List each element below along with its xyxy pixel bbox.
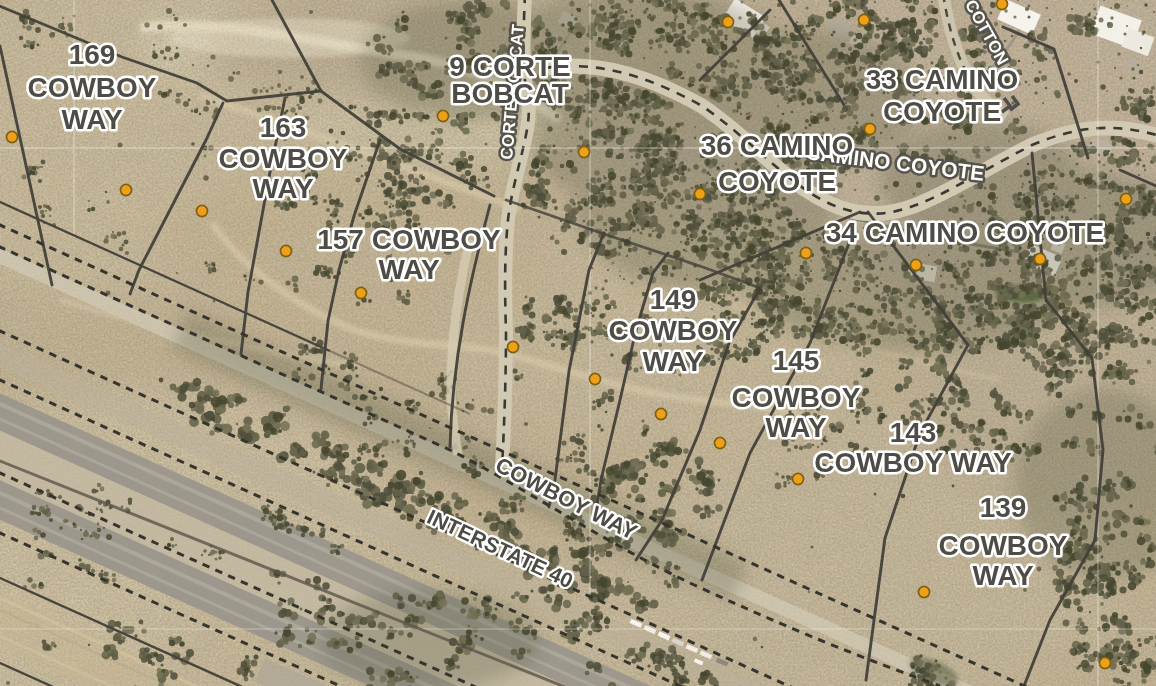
svg-text:COWBOY: COWBOY — [608, 315, 737, 346]
svg-text:34 CAMINO COYOTE: 34 CAMINO COYOTE — [826, 217, 1104, 248]
svg-text:149: 149 — [650, 284, 697, 315]
svg-text:COWBOY: COWBOY — [731, 382, 860, 413]
svg-text:COYOTE: COYOTE — [883, 96, 1001, 127]
svg-text:WAY: WAY — [252, 173, 314, 204]
svg-text:WAY: WAY — [61, 104, 123, 135]
svg-text:WAY: WAY — [765, 412, 827, 443]
svg-text:163: 163 — [260, 112, 307, 143]
svg-text:COWBOY: COWBOY — [218, 143, 347, 174]
svg-text:COWBOY: COWBOY — [938, 530, 1067, 561]
svg-text:WAY: WAY — [972, 560, 1034, 591]
svg-text:WAY: WAY — [642, 346, 704, 377]
svg-text:COWBOY WAY: COWBOY WAY — [814, 447, 1012, 478]
svg-text:COYOTE: COYOTE — [718, 166, 836, 197]
svg-text:COWBOY: COWBOY — [27, 72, 156, 103]
svg-text:169: 169 — [69, 39, 116, 70]
svg-text:145: 145 — [773, 345, 820, 376]
svg-text:WAY: WAY — [378, 254, 440, 285]
svg-text:36 CAMINO: 36 CAMINO — [701, 130, 853, 161]
svg-text:157 COWBOY: 157 COWBOY — [317, 224, 501, 255]
svg-text:BOBCAT: BOBCAT — [451, 78, 569, 109]
svg-text:139: 139 — [980, 492, 1027, 523]
svg-text:33 CAMINO: 33 CAMINO — [866, 64, 1018, 95]
svg-text:143: 143 — [890, 417, 937, 448]
